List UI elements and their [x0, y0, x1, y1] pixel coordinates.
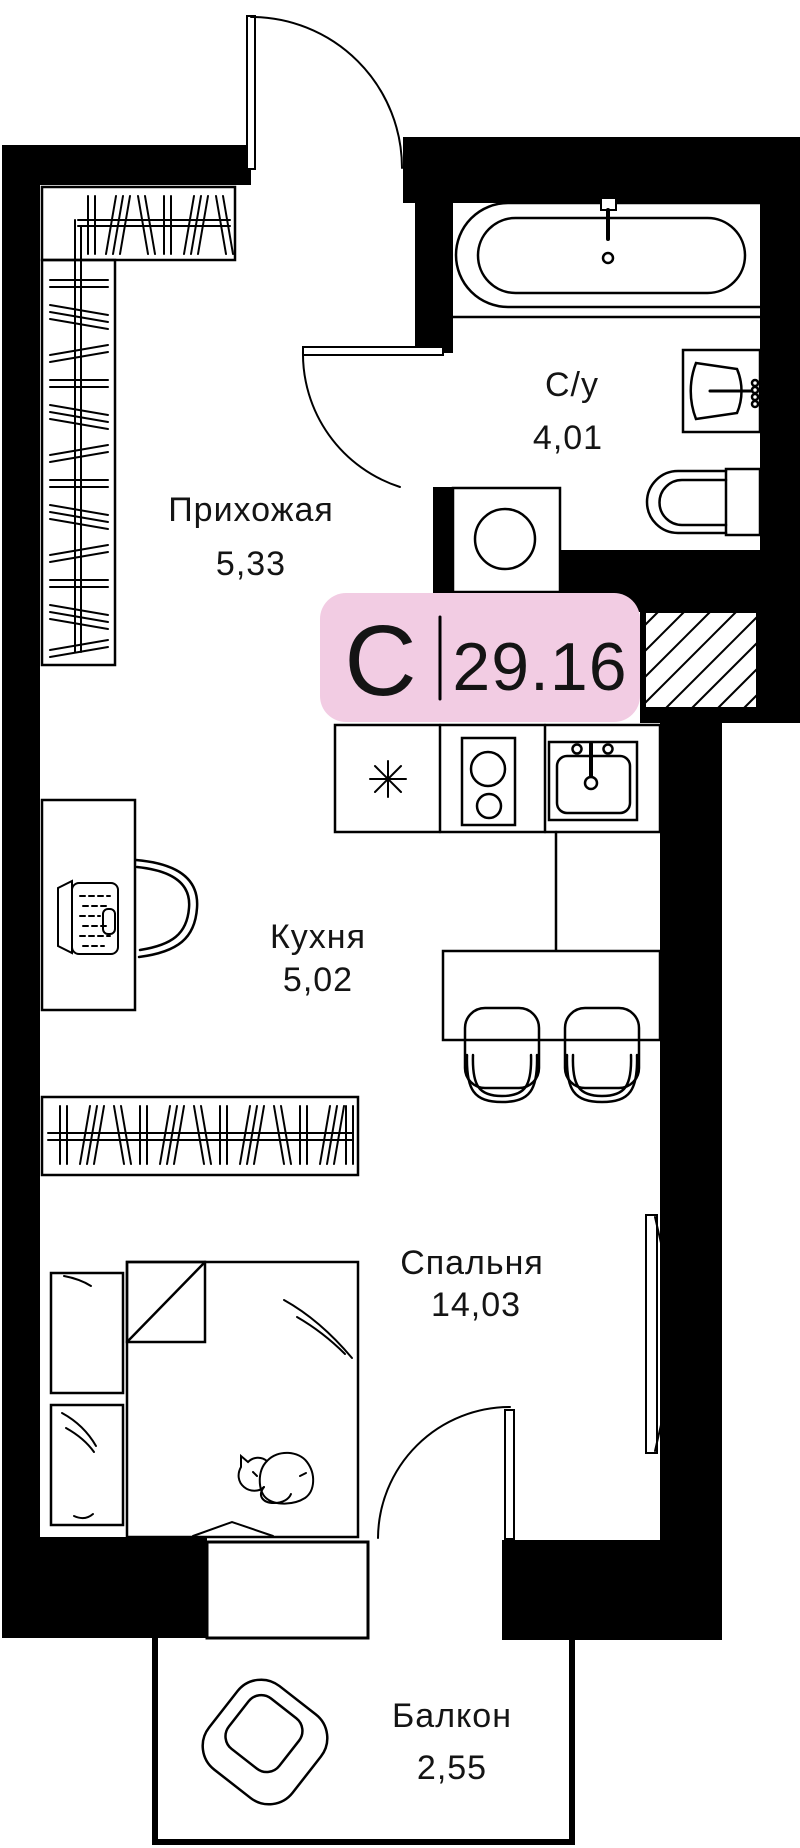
bed-icon	[127, 1262, 358, 1537]
entrance-door-leaf	[247, 16, 255, 169]
room-area-hallway: 5,33	[216, 545, 286, 583]
room-name-bedroom: Спальня	[400, 1244, 544, 1282]
washing-machine-icon	[453, 488, 560, 592]
nightstand-icon	[51, 1273, 123, 1393]
wardrobe-icon	[42, 187, 235, 665]
washbasin-icon	[683, 350, 760, 432]
bathroom-door-leaf	[303, 347, 443, 355]
wardrobe-icon	[42, 1097, 358, 1175]
bathtub-icon	[453, 198, 760, 317]
door-swing-icon	[251, 17, 402, 168]
room-name-kitchen: Кухня	[270, 918, 366, 956]
door-swing-icon	[378, 1407, 510, 1538]
balcony-door-leaf	[505, 1410, 514, 1539]
desk-chair-icon	[136, 860, 197, 957]
fridge-asterisk-icon	[370, 761, 406, 797]
ventilation-shaft-hatch	[645, 612, 757, 708]
room-area-bathroom: 4,01	[533, 419, 603, 457]
unit-type-letter: С	[344, 605, 417, 717]
armchair-icon	[191, 1668, 340, 1817]
unit-total-area: 29.16	[452, 629, 627, 705]
room-area-bedroom: 14,03	[431, 1286, 521, 1324]
room-name-balcony: Балкон	[392, 1697, 512, 1735]
room-area-balcony: 2,55	[417, 1749, 487, 1787]
entrance-door	[247, 16, 402, 169]
desk-icon	[42, 800, 135, 1010]
door-swing-icon	[303, 351, 400, 487]
room-name-bathroom: С/у	[545, 366, 599, 404]
floor-plan: С 29.16 Прихожая 5,33 С/у 4,01 Кухня 5,0…	[0, 0, 800, 1848]
room-area-kitchen: 5,02	[283, 961, 353, 999]
window-icon	[646, 1215, 661, 1453]
toilet-icon	[647, 469, 760, 535]
balcony-window-unit	[207, 1542, 368, 1638]
bathroom-door	[303, 347, 443, 487]
unit-badge: С 29.16	[320, 593, 640, 722]
nightstand-icon	[51, 1405, 123, 1525]
dining-table-icon	[443, 951, 660, 1040]
balcony-door	[378, 1407, 514, 1539]
room-name-hallway: Прихожая	[168, 491, 334, 529]
